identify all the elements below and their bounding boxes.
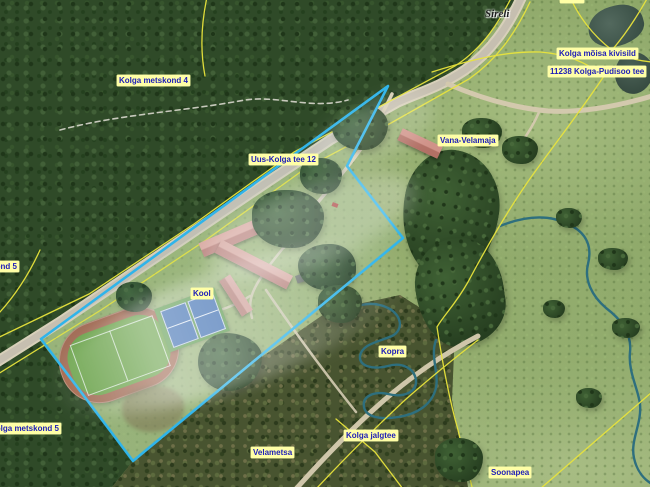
map-label-kool: Kool (191, 288, 213, 299)
map-label-sireli-parcel: Sireli (560, 0, 584, 3)
map-label-kolga-pudisoo-tee: 11238 Kolga-Pudisoo tee (548, 66, 646, 77)
map-label-kolga-moisa-kivisild: Kolga mõisa kivisild (557, 48, 638, 59)
map-label-kolga-metskond-4: Kolga metskond 4 (117, 75, 190, 86)
map-label-kopra: Kopra (379, 346, 406, 357)
map-label-kolga-metskond-5: Kolga metskond 5 (0, 423, 61, 434)
aerial-map-view[interactable]: Kolga metskond 4SireliSireliKolga mõisa … (0, 0, 650, 487)
map-label-soonapea: Soonapea (489, 467, 531, 478)
map-label-metskond-5-fragment: Kolga metskond 5 (0, 261, 19, 272)
labels-layer: Kolga metskond 4SireliSireliKolga mõisa … (0, 0, 650, 487)
map-label-uus-kolga-tee-12: Uus-Kolga tee 12 (249, 154, 318, 165)
map-label-velametsa: Velametsa (251, 447, 294, 458)
map-label-vana-velamaja: Vana-Velamaja (438, 135, 498, 146)
map-label-kolga-jalgtee: Kolga jalgtee (344, 430, 398, 441)
map-label-sireli-place: Sireli (483, 7, 511, 21)
